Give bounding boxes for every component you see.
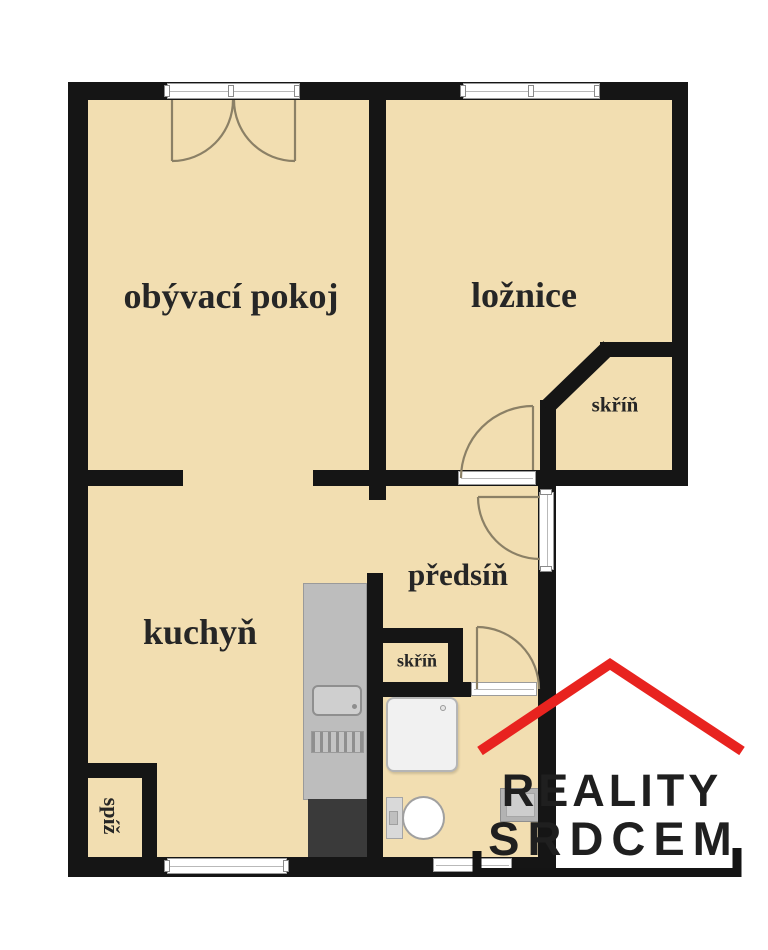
label-kitchen: kuchyň <box>143 611 257 653</box>
label-bedroom-wardrobe: skříň <box>592 393 639 418</box>
label-pantry: spíž <box>98 798 124 835</box>
label-hall-wardrobe: skříň <box>397 651 437 672</box>
floor-plan: obývací pokoj ložnice skříň předsíň kuch… <box>0 0 768 950</box>
logo-roof-icon <box>480 664 742 751</box>
balcony-door-right-swing <box>234 100 295 161</box>
label-living-room: obývací pokoj <box>123 275 338 317</box>
entrance-door-swing <box>478 497 540 559</box>
label-bedroom: ložnice <box>471 274 577 316</box>
logo-line2: SRDCEM <box>473 811 755 866</box>
bedroom-door-swing <box>461 406 533 478</box>
logo-line1: REALITY <box>471 765 753 817</box>
bathroom-door-swing <box>477 627 539 689</box>
balcony-door-left-swing <box>172 100 233 161</box>
label-hallway: předsíň <box>408 557 508 593</box>
